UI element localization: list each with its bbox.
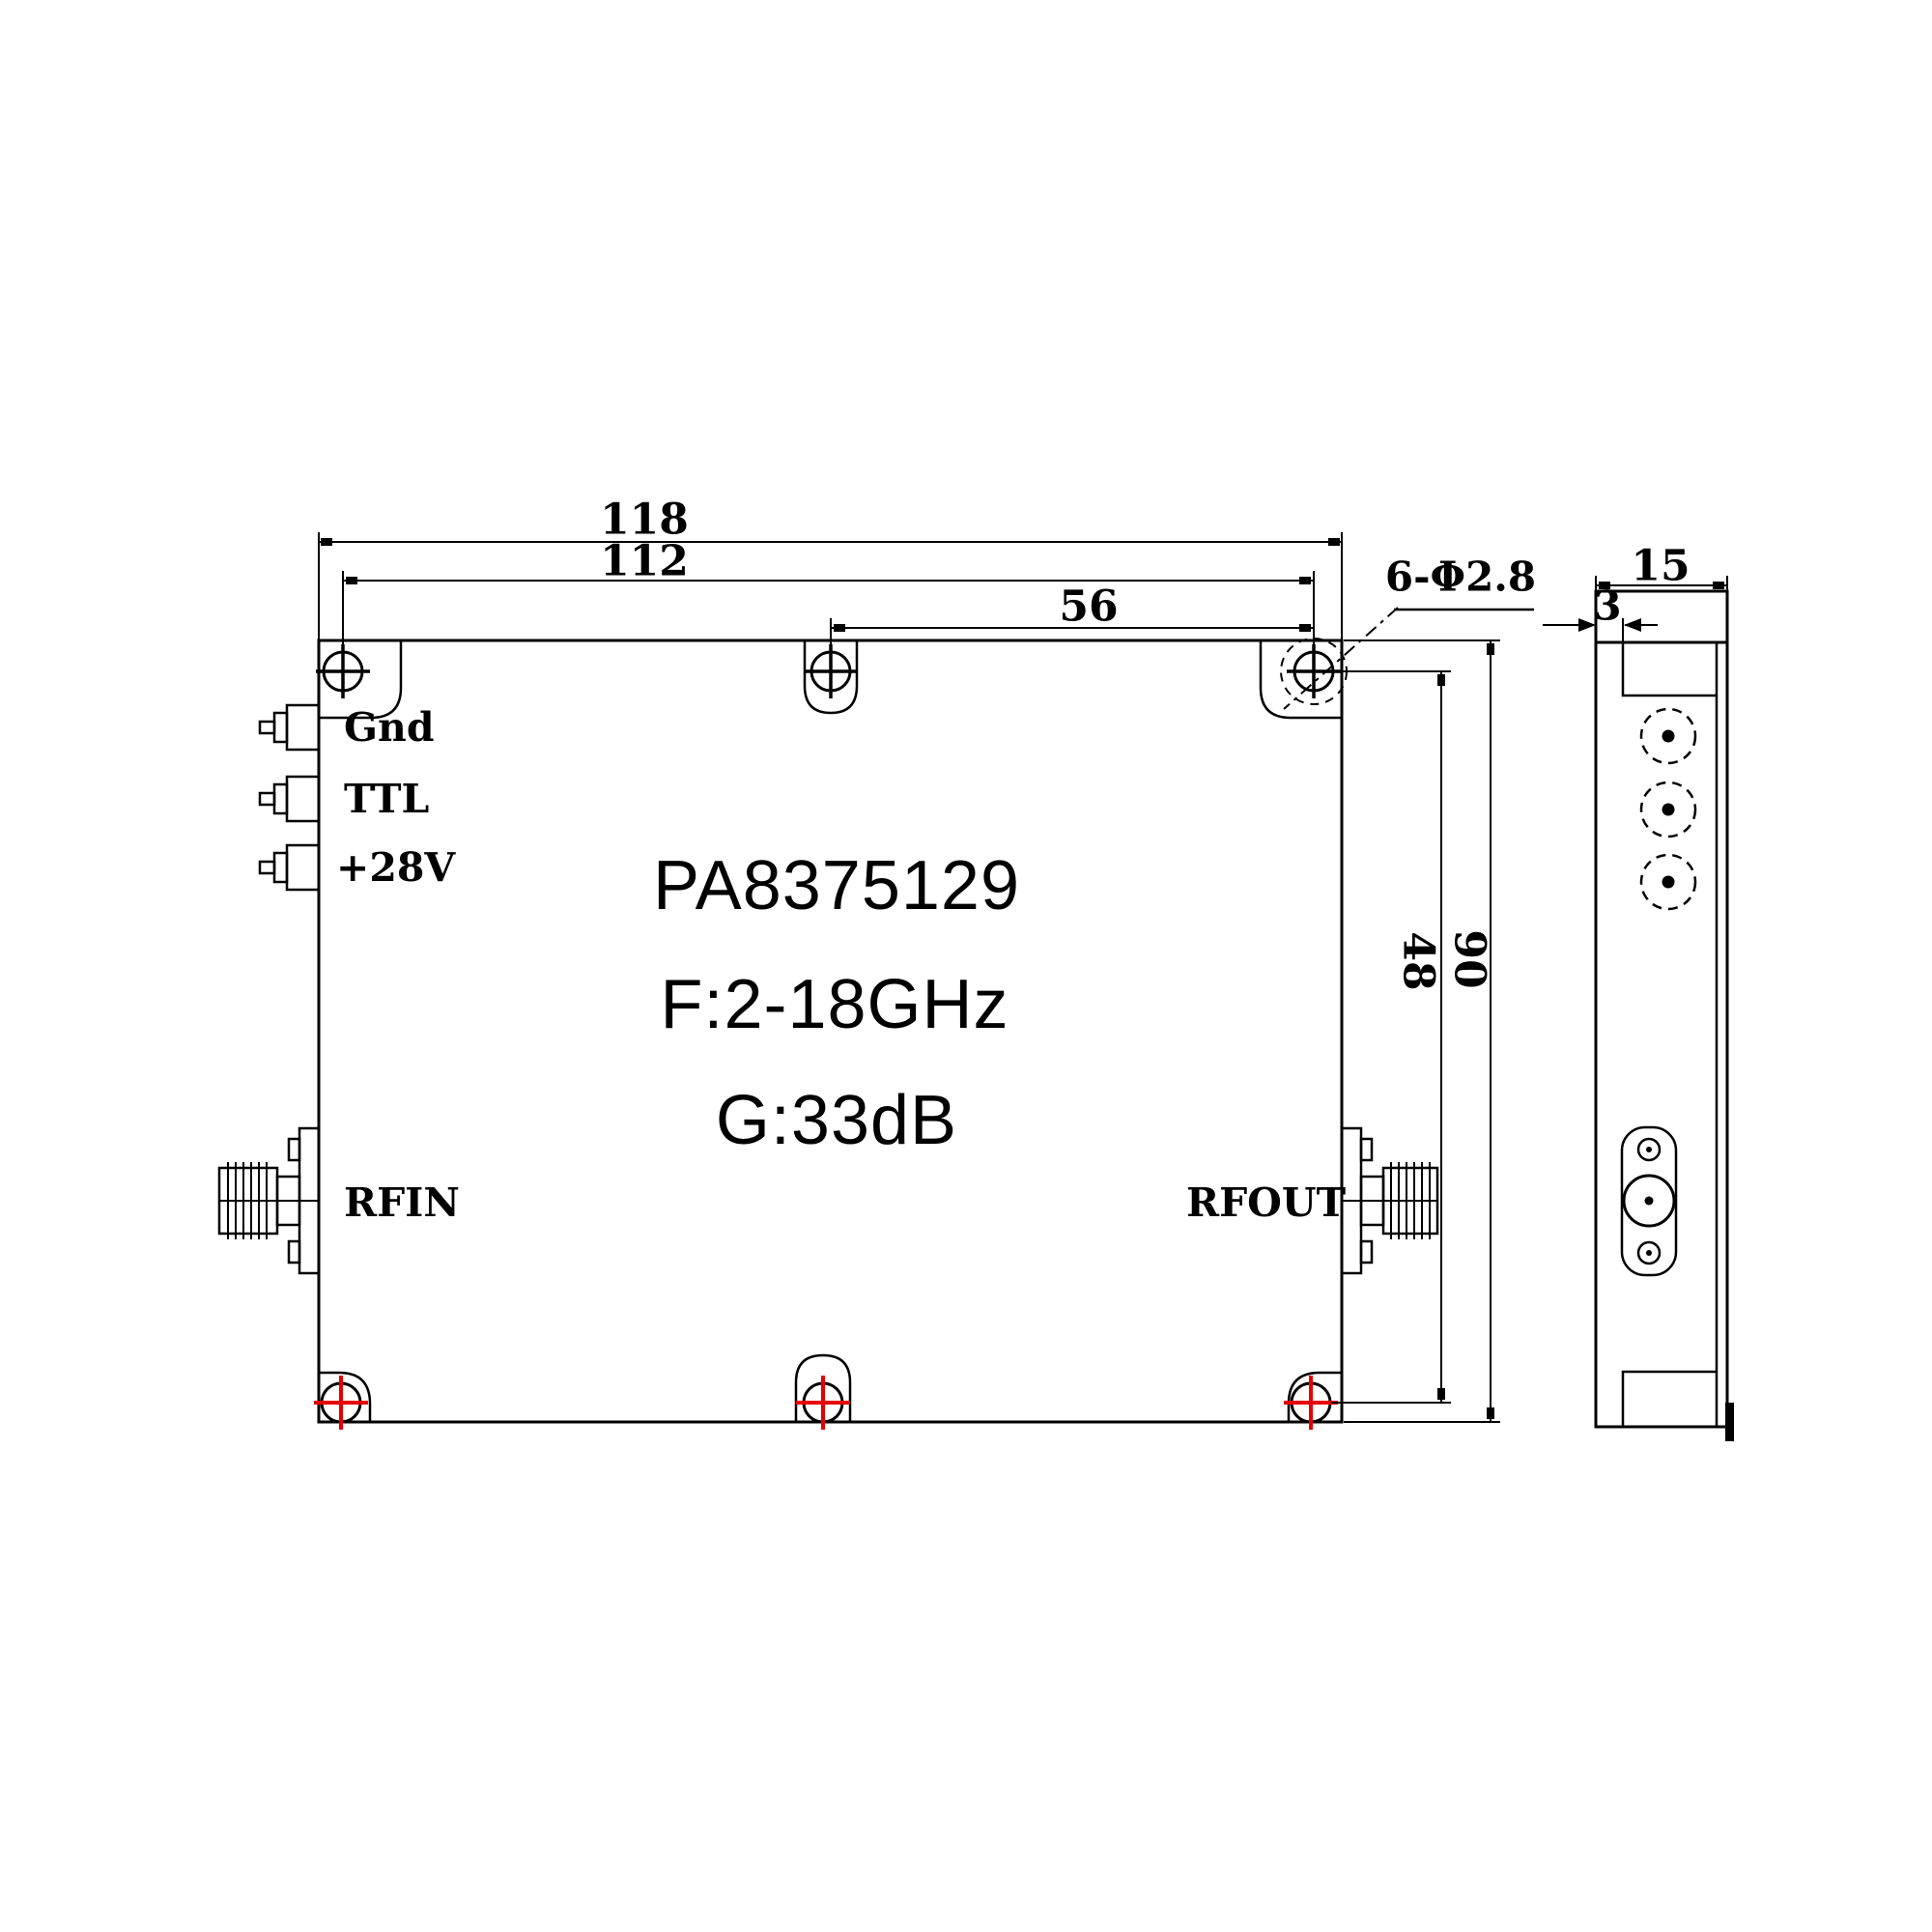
dim-lid-thickness: 3 bbox=[1593, 582, 1621, 630]
side-view-sma-flange bbox=[1622, 1127, 1676, 1275]
port-label-gnd: Gnd bbox=[344, 704, 435, 751]
side-view-dc-pins bbox=[1641, 709, 1695, 909]
gnd-pin-connector bbox=[260, 705, 319, 750]
frequency-range: F:2-18GHz bbox=[660, 965, 1009, 1044]
port-label-28v: +28V bbox=[336, 844, 455, 891]
port-label-ttl: TTL bbox=[344, 776, 429, 822]
dim-depth: 15 bbox=[1631, 542, 1690, 591]
port-label-rfout: RFOUT bbox=[1186, 1179, 1346, 1226]
dim-width-hole-span: 112 bbox=[600, 537, 689, 586]
dim-height-total: 90 bbox=[1445, 929, 1494, 988]
side-view-body bbox=[1596, 591, 1734, 1441]
port-label-rfin: RFIN bbox=[344, 1179, 460, 1226]
dim-height-hole-span: 48 bbox=[1394, 931, 1443, 990]
ttl-pin-connector bbox=[260, 777, 319, 821]
dim-width-half-span: 56 bbox=[1059, 582, 1118, 632]
rfin-sma-connector bbox=[219, 1128, 319, 1273]
gain-spec: G:33dB bbox=[716, 1081, 957, 1160]
rfout-sma-connector bbox=[1342, 1128, 1437, 1273]
dim-hole-callout: 6-Φ2.8 bbox=[1385, 554, 1536, 601]
model-number: PA8375129 bbox=[653, 846, 1020, 925]
dimension-lines bbox=[319, 532, 1727, 1422]
v28-pin-connector bbox=[260, 845, 319, 890]
mechanical-drawing-canvas: 118 112 56 6-Φ2.8 48 90 15 3 Gnd TTL +28… bbox=[0, 0, 1932, 1932]
